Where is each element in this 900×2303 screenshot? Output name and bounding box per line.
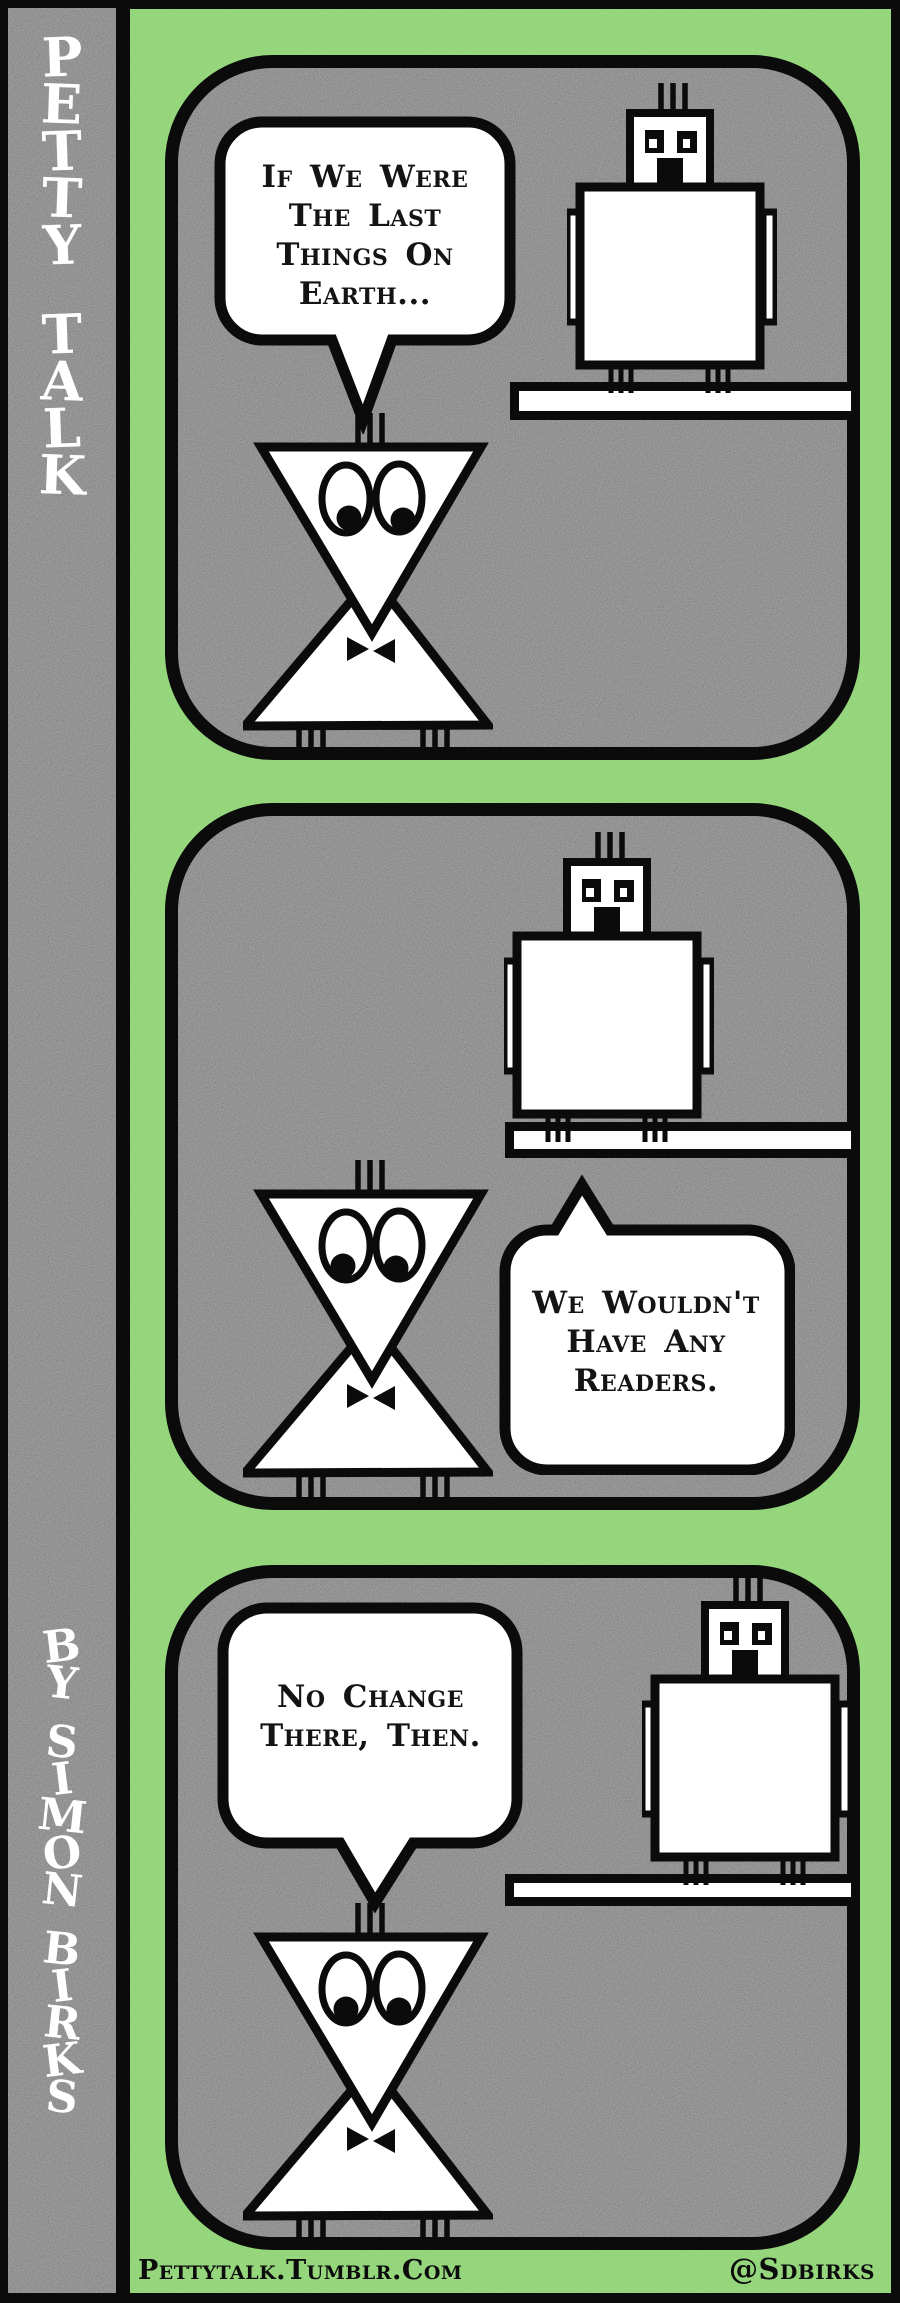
footer-twitter-handle: @Sdbirks — [560, 2252, 875, 2286]
left-pupil — [337, 506, 362, 531]
beak — [657, 158, 683, 185]
comic-byline-vertical: BYSIMONBIRKS — [8, 1628, 116, 2116]
square-bird-shapes — [567, 83, 776, 393]
stacked-letter: N — [40, 1870, 84, 1911]
head — [261, 447, 481, 633]
left-eye-glint — [649, 139, 657, 148]
speech-bubble-text: If We Were The Last Things On Earth... — [225, 158, 505, 314]
right-eye-glint — [683, 139, 690, 148]
square-bird — [642, 1575, 852, 1887]
right-pupil — [391, 508, 416, 533]
stacked-letter: K — [38, 451, 87, 500]
sidebar: PETTYTALK BYSIMONBIRKS — [8, 8, 116, 2293]
comic-page: PETTYTALK BYSIMONBIRKS — [0, 0, 900, 2303]
square-bird — [504, 832, 714, 1144]
body — [580, 187, 760, 365]
comic-title-vertical: PETTYTALK — [8, 34, 116, 499]
triangle-bird — [243, 413, 493, 763]
footer-site-url: Pettytalk.Tumblr.Com — [138, 2255, 462, 2286]
stacked-letter: Y — [44, 1663, 79, 1703]
speech-bubble-text: We Wouldn't Have Any Readers. — [512, 1284, 780, 1401]
stacked-letter: S — [44, 2077, 79, 2117]
speech-bubble-text: No Change There, Then. — [228, 1678, 513, 1756]
triangle-bird — [243, 1160, 493, 1510]
triangle-bird-shapes — [245, 413, 488, 760]
speech-bubble — [215, 1600, 525, 1915]
stacked-letter: Y — [42, 221, 82, 269]
square-bird — [567, 83, 777, 395]
triangle-bird — [243, 1903, 493, 2253]
right-wing — [763, 212, 776, 322]
